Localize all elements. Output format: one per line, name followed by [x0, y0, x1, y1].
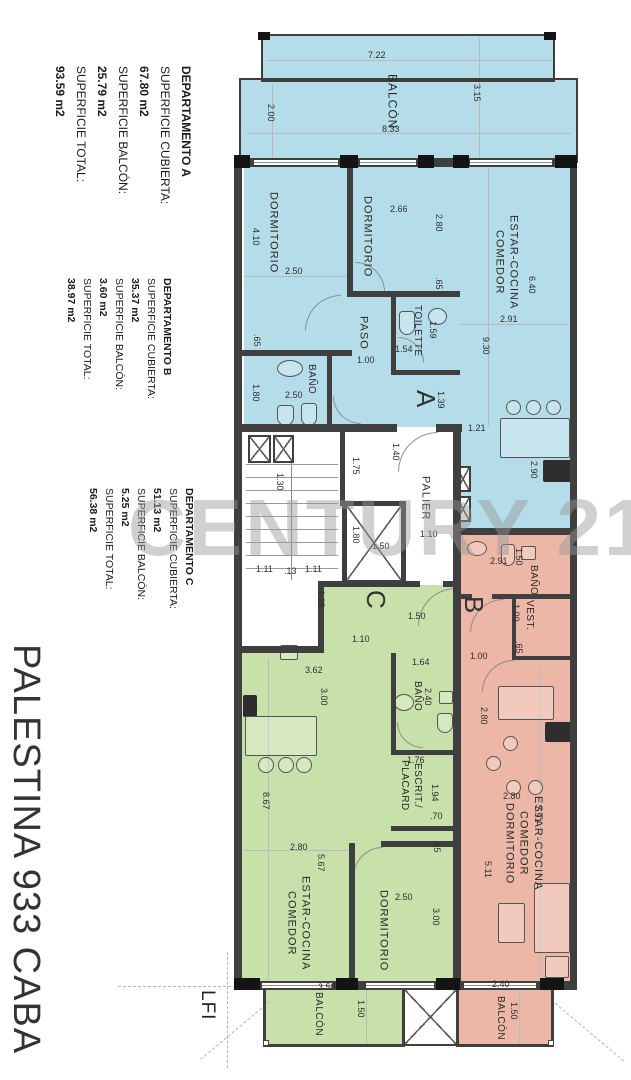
department-a-summary: DEPARTAMENTO A SUPERFICIE CUBIERTA: 67.8…: [49, 66, 196, 204]
window: [360, 158, 416, 167]
stool: [503, 736, 518, 751]
wall-segment: [234, 646, 324, 653]
dimension-label: 2.91: [490, 556, 508, 566]
value-superficie-cubierta: 35.37 m2: [127, 278, 143, 399]
sink-fixture: [467, 541, 487, 556]
dimension-label: 1.30: [275, 473, 285, 491]
kitchen-counter: [245, 716, 317, 756]
balcony-outline: [239, 78, 578, 163]
stool: [486, 756, 501, 771]
room-label-bano: BAÑO: [305, 364, 318, 394]
dimension-label: 2.50: [395, 892, 413, 902]
pier: [234, 978, 260, 990]
value-superficie-total: 56.38 m2: [85, 488, 101, 609]
dimension-label: 9.30: [481, 337, 491, 355]
dimension-line: [244, 276, 348, 277]
wall-segment: [453, 528, 577, 535]
dimension-label: 1.64: [412, 657, 430, 667]
dimension-label: 1.50: [372, 541, 390, 551]
wall-segment: [234, 424, 397, 432]
dimension-label: .65: [514, 641, 524, 654]
wall-segment: [318, 581, 420, 587]
dimension-label: 1.10: [352, 634, 370, 644]
dimension-label: 2.40: [423, 688, 433, 706]
wall-segment: [453, 424, 461, 990]
toilet-fixture: [301, 403, 317, 426]
unit-letter-b: B: [458, 596, 489, 613]
room-label-escritorio: ESCRIT./ PLACARD: [398, 760, 424, 811]
room-label-dormitorio: DORMITORIO: [266, 192, 280, 273]
window: [254, 158, 338, 167]
wall-segment: [391, 653, 396, 755]
pier: [336, 978, 358, 990]
dimension-label: 3.00: [431, 908, 441, 926]
room-label-balcon: BALCÓN: [494, 996, 507, 1040]
stool: [526, 400, 541, 415]
reference-line: [118, 986, 236, 987]
unit-letter-c: C: [360, 590, 391, 609]
wall-segment: [391, 750, 460, 755]
value-superficie-balcon: 25.79 m2: [91, 66, 112, 204]
wall-segment: [347, 166, 353, 292]
dimension-label: 1.75: [351, 457, 361, 475]
wall-segment: [340, 426, 345, 506]
wall-segment: [327, 356, 332, 430]
dimension-label: 1.50: [356, 1000, 366, 1018]
value-superficie-cubierta: 67.80 m2: [133, 66, 154, 204]
dimension-label: 2.66: [390, 204, 408, 214]
bed: [534, 883, 570, 953]
wall-segment: [443, 581, 459, 587]
room-label-palier: PALIER: [418, 476, 432, 520]
room-label-balcony-top: BALCÓN: [384, 74, 400, 129]
room-label-vestidor: VEST.: [523, 600, 536, 630]
dimension-label: 2.00: [266, 104, 276, 122]
pier: [340, 155, 358, 168]
dimension-label: .70: [430, 811, 443, 821]
dimension-label: 2.80: [434, 214, 444, 232]
air-shaft: [403, 988, 458, 1046]
pier: [436, 978, 460, 990]
value-superficie-cubierta: 51.13 m2: [149, 488, 165, 609]
dimension-label: 1.10: [420, 529, 438, 539]
dimension-label: 3.15: [472, 84, 482, 102]
value-superficie-total: 93.59 m2: [49, 66, 70, 204]
label-superficie-cubierta: SUPERFICIE CUBIERTA:: [154, 66, 175, 204]
dimension-label: .65: [432, 840, 442, 853]
bidet-fixture: [277, 405, 294, 426]
room-label-toilette: TOILETTE: [411, 305, 424, 357]
kitchen-counter: [498, 686, 554, 720]
dimension-line: [268, 658, 269, 980]
dimension-label: 1.94: [430, 784, 440, 802]
label-superficie-balcon: SUPERFICIE BALCÓN:: [112, 66, 133, 204]
window: [470, 158, 552, 167]
wall-segment: [234, 158, 242, 990]
department-b-summary: DEPARTAMENTO B SUPERFICIE CUBIERTA: 35.3…: [63, 278, 175, 399]
cooktop: [543, 460, 573, 482]
pier: [555, 155, 577, 168]
cooktop: [545, 722, 571, 742]
room-label-dormitorio: DORMITORIO: [376, 890, 390, 971]
dimension-label: 7.22: [368, 50, 386, 60]
stool: [528, 780, 543, 795]
dimension-label: .65: [434, 277, 444, 290]
room-label-balcon: BALCÓN: [312, 992, 325, 1036]
dimension-label: 1.50: [408, 611, 426, 621]
label-superficie-total: SUPERFICIE TOTAL:: [79, 278, 95, 399]
room-label-dormitorio: DORMITORIO: [360, 196, 374, 277]
wall-segment: [512, 656, 577, 660]
dimension-label: 2.91: [500, 314, 518, 324]
pier: [418, 155, 434, 168]
stair-treads: [246, 452, 338, 580]
level-label: LFI: [196, 990, 218, 1020]
kitchen-counter: [500, 418, 570, 458]
bathtub-fixture: [277, 360, 303, 377]
dimension-label: 2.80: [479, 707, 489, 725]
floor-plan-sheet: DEPARTAMENTO A SUPERFICIE CUBIERTA: 67.8…: [0, 0, 631, 1080]
dimension-label: 2.80: [503, 791, 521, 801]
wall-segment: [391, 297, 396, 375]
reference-line: [551, 1000, 624, 1062]
room-label-paso: PASO: [356, 316, 370, 350]
dimension-label: 1.00: [470, 651, 488, 661]
dimension-label: 1.50: [509, 1002, 519, 1020]
stool: [296, 757, 312, 773]
dimension-label: .13: [284, 566, 297, 576]
toilet-fixture: [437, 713, 453, 733]
wall-segment: [349, 843, 355, 983]
wall-segment: [391, 370, 460, 375]
sink-fixture: [439, 691, 453, 704]
label-superficie-total: SUPERFICIE TOTAL:: [70, 66, 91, 204]
dimension-label: 2.50: [285, 390, 303, 400]
label-superficie-balcon: SUPERFICIE BALCÓN:: [133, 488, 149, 609]
dimension-label: 1.59: [428, 321, 438, 339]
dimension-label: 2.80: [290, 842, 308, 852]
dimension-label: 1.00: [511, 604, 521, 622]
dimension-label: 1.00: [357, 355, 375, 365]
duct-shaft: [248, 435, 271, 463]
dimension-line: [460, 324, 568, 325]
dimension-label: 8.33: [382, 124, 400, 134]
corner-marker: [548, 1040, 554, 1046]
dimension-label: 3.50: [318, 982, 336, 992]
corner-marker: [263, 1040, 269, 1046]
dimension-label: 2.50: [285, 266, 303, 276]
dimension-label: 1.80: [251, 384, 261, 402]
dimension-label: 1.50: [514, 548, 524, 566]
wall-segment: [391, 826, 460, 831]
stool: [506, 400, 521, 415]
dimension-label: 3.62: [305, 665, 323, 675]
value-superficie-total: 38.97 m2: [63, 278, 79, 399]
dimension-label: .65: [252, 334, 262, 347]
label-superficie-cubierta: SUPERFICIE CUBIERTA:: [143, 278, 159, 399]
room-label-bano: BAÑO: [527, 565, 540, 595]
dimension-label: 1.40: [391, 443, 401, 461]
dimension-label: 1.39: [436, 391, 446, 409]
wall-segment: [381, 841, 460, 847]
label-superficie-total: SUPERFICIE TOTAL:: [101, 488, 117, 609]
reference-line: [227, 952, 228, 1068]
door-swing: [398, 432, 438, 472]
dimension-label: 2.40: [492, 979, 510, 989]
side-table: [498, 903, 525, 943]
stool: [258, 757, 274, 773]
department-b-title: DEPARTAMENTO B: [159, 278, 175, 399]
duct-shaft: [273, 435, 294, 463]
dimension-label: 2.90: [529, 461, 539, 479]
pier: [258, 32, 270, 40]
dimension-label: 8.67: [261, 792, 271, 810]
side-table: [545, 956, 569, 978]
dimension-label: 1.80: [351, 526, 361, 544]
dimension-label: 1.11: [256, 564, 273, 574]
dimension-label: 1.25: [316, 590, 326, 608]
dimension-label: 4.10: [251, 228, 261, 246]
dimension-label: 1.54: [395, 344, 413, 354]
stool: [546, 400, 561, 415]
wall-segment: [347, 291, 460, 297]
wall-segment: [570, 158, 577, 990]
room-label-estar-cocina: ESTAR-COCINA COMEDOR: [492, 215, 521, 309]
dimension-label: 6.40: [527, 276, 537, 294]
window: [366, 981, 434, 990]
dimension-label: 7.91: [533, 805, 543, 823]
balcony-outline: [263, 986, 405, 1047]
dimension-label: 1.21: [468, 423, 486, 433]
room-label-estar-cocina: ESTAR-COCINA COMEDOR: [284, 876, 313, 970]
pier: [234, 155, 250, 168]
project-title: PALESTINA 933 CABA: [4, 644, 47, 1054]
label-superficie-cubierta: SUPERFICIE CUBIERTA:: [165, 488, 181, 609]
wall-segment: [242, 350, 352, 356]
label-superficie-balcon: SUPERFICIE BALCÓN:: [111, 278, 127, 399]
department-c-summary: DEPARTAMENTO C SUPERFICIE CUBIERTA: 51.1…: [85, 488, 197, 609]
department-c-title: DEPARTAMENTO C: [181, 488, 197, 609]
dimension-label: 3.00: [319, 688, 329, 706]
dimension-line: [488, 168, 489, 426]
dimension-label: 1.11: [305, 564, 322, 574]
stool: [278, 757, 294, 773]
dimension-label: 5.67: [316, 854, 326, 872]
department-a-title: DEPARTAMENTO A: [175, 66, 196, 204]
pier: [540, 978, 564, 990]
dimension-label: 5.11: [483, 861, 493, 878]
pier: [453, 155, 469, 168]
dimension-label: 1.76: [407, 755, 425, 765]
value-superficie-balcon: 5.25 m2: [117, 488, 133, 609]
balcony-outline: [261, 34, 555, 82]
pier: [544, 32, 556, 40]
value-superficie-balcon: 3.60 m2: [95, 278, 111, 399]
appliance: [243, 695, 257, 717]
